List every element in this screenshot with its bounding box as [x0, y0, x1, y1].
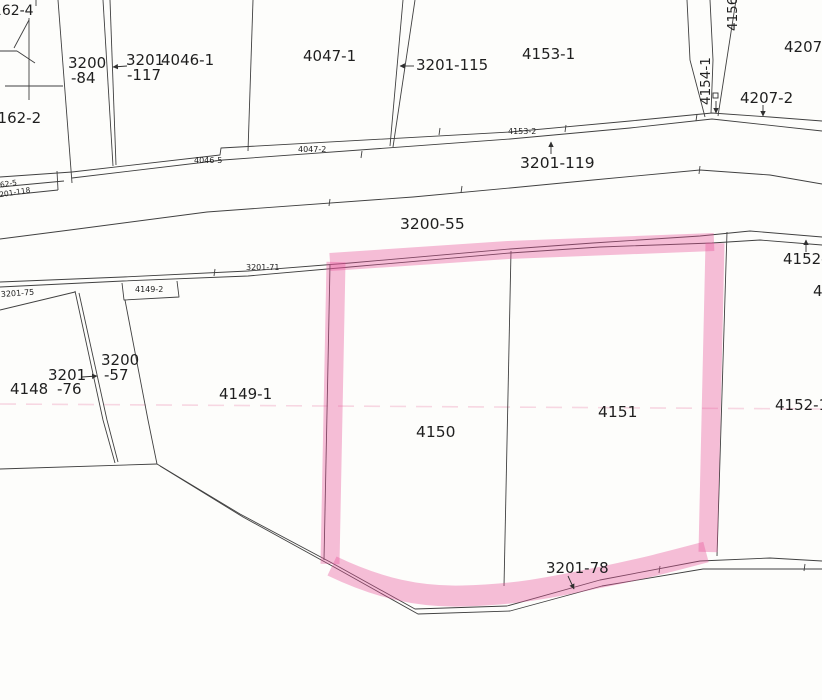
- survey-tick: [461, 186, 462, 193]
- parcel-label-4047-1: 4047-1: [303, 47, 356, 65]
- survey-tick: [361, 151, 362, 158]
- parcel-boundary-line: [57, 171, 58, 190]
- parcel-label-3200-84b: -84: [71, 69, 96, 87]
- parcel-boundary-line: [110, 0, 116, 165]
- parcel-boundary-line: [248, 0, 253, 151]
- parcel-label-3201-76b: -76: [57, 380, 82, 398]
- scan-artifact-line: [0, 404, 822, 409]
- parcel-boundary-line: [14, 20, 29, 48]
- parcel-label-4207-1: 4207-1: [784, 38, 822, 56]
- parcel-label-3201-115: 3201-115: [416, 56, 488, 74]
- highlight-marker-stroke: [330, 242, 714, 262]
- parcel-label-4047-2: 4047-2: [298, 145, 326, 154]
- parcel-boundary-line: [17, 51, 35, 63]
- parcel-label-4-edge: 4: [813, 282, 822, 300]
- parcel-boundary-line: [0, 172, 72, 177]
- highlight-marker-stroke: [330, 262, 336, 564]
- survey-tick: [214, 269, 215, 276]
- parcel-label-4046-5: 4046-5: [194, 156, 222, 165]
- parcel-boundary-line: [72, 113, 822, 172]
- survey-tick: [565, 125, 566, 132]
- parcel-label-4153-2: 4153-2: [508, 127, 536, 136]
- parcel-label-3201-71: 3201-71: [246, 263, 279, 272]
- parcel-label-4207-2: 4207-2: [740, 89, 793, 107]
- parcel-label-4149-1: 4149-1: [219, 385, 272, 403]
- parcel-label-3200-55: 3200-55: [400, 215, 465, 233]
- parcel-label-4162-4: 4162-4: [0, 3, 34, 19]
- parcel-label-3201-117b: -117: [127, 66, 161, 84]
- parcel-boundary-line: [58, 0, 72, 183]
- parcel-label-4162-2: 4162-2: [0, 109, 41, 127]
- parcel-label-3201-119: 3201-119: [520, 154, 595, 172]
- parcel-label-4148: 4148: [10, 380, 48, 398]
- survey-tick: [804, 564, 805, 571]
- parcel-label-4156: 4156: [725, 0, 741, 31]
- parcel-boundary-line: [103, 0, 113, 166]
- cadastral-map: 4162-44162-23200-843201-1174046-14047-13…: [0, 0, 822, 700]
- parcel-label-4046-1: 4046-1: [161, 51, 214, 69]
- parcel-boundary-line: [125, 300, 157, 464]
- parcel-label-4150: 4150: [416, 423, 455, 441]
- survey-tick: [329, 199, 330, 206]
- parcel-label-4152-2: 4152-2: [783, 250, 822, 268]
- cadastral-map-canvas: 4162-44162-23200-843201-1174046-14047-13…: [0, 0, 822, 700]
- parcel-label-3201-75: 3201-75: [1, 288, 35, 299]
- parcel-label-3201-78: 3201-78: [546, 559, 609, 577]
- parcel-label-3200-57b: -57: [104, 366, 129, 384]
- highlight-marker-stroke: [332, 552, 706, 596]
- highlighter-layer: [330, 242, 715, 596]
- survey-tick: [699, 166, 700, 174]
- parcel-label-4153-1: 4153-1: [522, 45, 575, 63]
- parcel-boundary-line: [72, 119, 822, 178]
- parcel-boundary-line: [504, 251, 511, 586]
- scan-artifact-layer: [0, 404, 822, 409]
- survey-tick: [696, 114, 697, 121]
- label-arrows-layer: [82, 66, 806, 589]
- label-leader-arrow: [113, 66, 127, 67]
- parcel-label-4154-1: 4154-1: [698, 57, 714, 105]
- survey-tick: [439, 128, 440, 135]
- parcel-labels-layer: 4162-44162-23200-843201-1174046-14047-13…: [0, 0, 822, 577]
- parcel-label-4152-1: 4152-1: [775, 396, 822, 414]
- highlight-marker-stroke: [708, 243, 715, 552]
- parcel-label-4149-2: 4149-2: [135, 285, 163, 294]
- parcel-label-4151: 4151: [598, 403, 637, 421]
- parcel-boundary-line: [0, 464, 157, 469]
